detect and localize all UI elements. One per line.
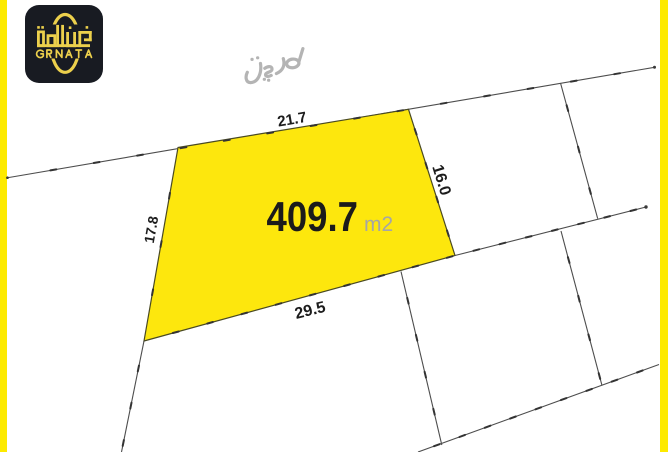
svg-text:m2: m2 — [364, 213, 393, 236]
svg-text:409.7: 409.7 — [267, 193, 358, 240]
